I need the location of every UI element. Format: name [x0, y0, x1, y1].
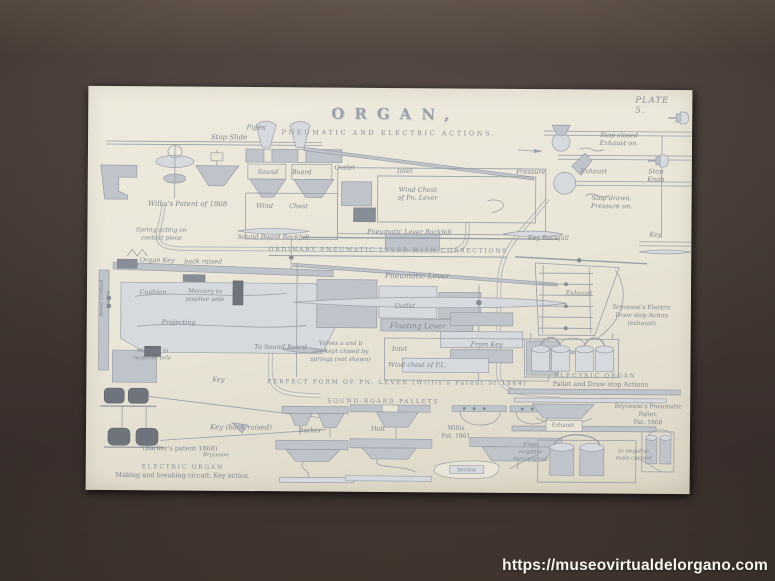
organ-key-label: Organ Key	[140, 256, 175, 265]
cushion-label: Cushion	[140, 288, 167, 297]
pressure-label: Pressure	[516, 168, 545, 177]
back-raised-label: back raised	[184, 257, 222, 266]
section-label-label: Section	[457, 467, 476, 474]
brycesons-electric-label: Bryceson's Electric Draw stop Action (ex…	[612, 304, 671, 328]
pneumatic-lever-label: Pneumatic Lever	[385, 271, 449, 281]
willis-patent-1868-label: Willis's Patent of 1868	[148, 200, 227, 210]
plate-subtitle: PNEUMATIC AND ELECTRIC ACTIONS.	[282, 128, 497, 138]
brycesons-pneumatic-label: Bryceson's Pneumatic Pallet. Pat. 1868	[615, 403, 682, 427]
ordinary-caption-label: ORDINARY PNEUMATIC LEVER WITH CORRECTION…	[269, 246, 508, 258]
board-label: Board	[292, 168, 312, 177]
sound-board-pallets-label: SOUND-BOARD PALLETS	[327, 398, 439, 407]
sound-board-backfall-label: Sound Board Backfall	[238, 233, 310, 242]
willis-1861-label: Willis Pat. 1861	[442, 425, 471, 441]
bryceson-sig-label: Bryceson	[203, 452, 229, 459]
stop-drawn-label: Stop drawn. Pressure on.	[591, 194, 632, 211]
wind-chest-pn-lever-label: Wind Chest of Pn. Lever	[398, 186, 438, 203]
to-sound-board-label: To Sound Board	[254, 343, 307, 352]
valves-note-label: Valves a and b are kept closed by spring…	[310, 340, 371, 364]
exhaust-box-label: Exhaust	[552, 423, 575, 430]
pneumatic-lever-backfall-label: Pneumatic Lever Backfall	[367, 228, 452, 237]
from-key-label: From Key	[471, 340, 503, 349]
pipes-label: Pipes	[247, 123, 266, 132]
chest-label: Chest	[289, 202, 308, 211]
sound-label: Sound	[257, 168, 278, 177]
to-negative-label: to negative main current	[616, 448, 653, 463]
outlet-top-label: Outlet	[334, 163, 355, 172]
stop-closed-label: Stop closed Exhaust on.	[600, 131, 639, 148]
plate-title: ORGAN,	[331, 105, 459, 124]
watermark-url: https://museovirtualdelorgano.com	[502, 557, 768, 575]
key-left-small-label: Key	[212, 376, 224, 385]
pallet-drawstop-label: Pallet and Draw stop Actions	[553, 380, 648, 389]
mercury-negative-label: Mercury to negative pole	[134, 348, 172, 363]
projecting-label: Projecting	[162, 318, 196, 327]
plate-paper: PLATE 5. ORGAN, PNEUMATIC AND ELECTRIC A…	[86, 86, 693, 494]
key-right-label: Key	[649, 231, 661, 240]
perfect-caption-label: PERFECT FORM OF PN. LEVER (Willis's Pate…	[267, 378, 527, 388]
stop-knob-label: Stop Knob	[647, 167, 664, 184]
wood-contact-label: wood contact piece	[99, 279, 114, 316]
holt-label-label: Holt	[371, 425, 385, 434]
from-negative-label: From negative mercury cup	[513, 442, 549, 464]
wind-chest-pl-label: Wind chest of P.L.	[388, 361, 447, 370]
outlet-mid-label: Outlet	[395, 302, 416, 311]
spring-note-label: Spring acting on contact piece	[136, 226, 187, 242]
inlet-top-label: Inlet	[397, 167, 412, 176]
exhaust-top-label: Exhaust	[580, 167, 607, 176]
key-back-raised-label: Key (back raised)	[210, 423, 272, 433]
plate-number: PLATE 5.	[635, 96, 673, 116]
exhaust-mid-label: Exhaust	[566, 289, 593, 298]
labels-layer: PLATE 5. ORGAN, PNEUMATIC AND ELECTRIC A…	[86, 86, 693, 494]
inlet-mid-label: Inlet	[392, 345, 407, 354]
making-breaking-label: Making and breaking circuit. Key action.	[115, 471, 250, 480]
stop-slide-label: Stop Slide	[211, 133, 248, 142]
barker-label-label: Barker	[299, 426, 322, 435]
mercury-positive-label: Mercury to positive pole	[186, 288, 225, 304]
key-backfall-label: Key Backfall	[528, 234, 569, 243]
photo-of-framed-plate: PLATE 5. ORGAN, PNEUMATIC AND ELECTRIC A…	[0, 0, 775, 581]
wind-label: Wind	[256, 202, 273, 211]
floating-lever-label: Floating Lever	[390, 321, 446, 331]
